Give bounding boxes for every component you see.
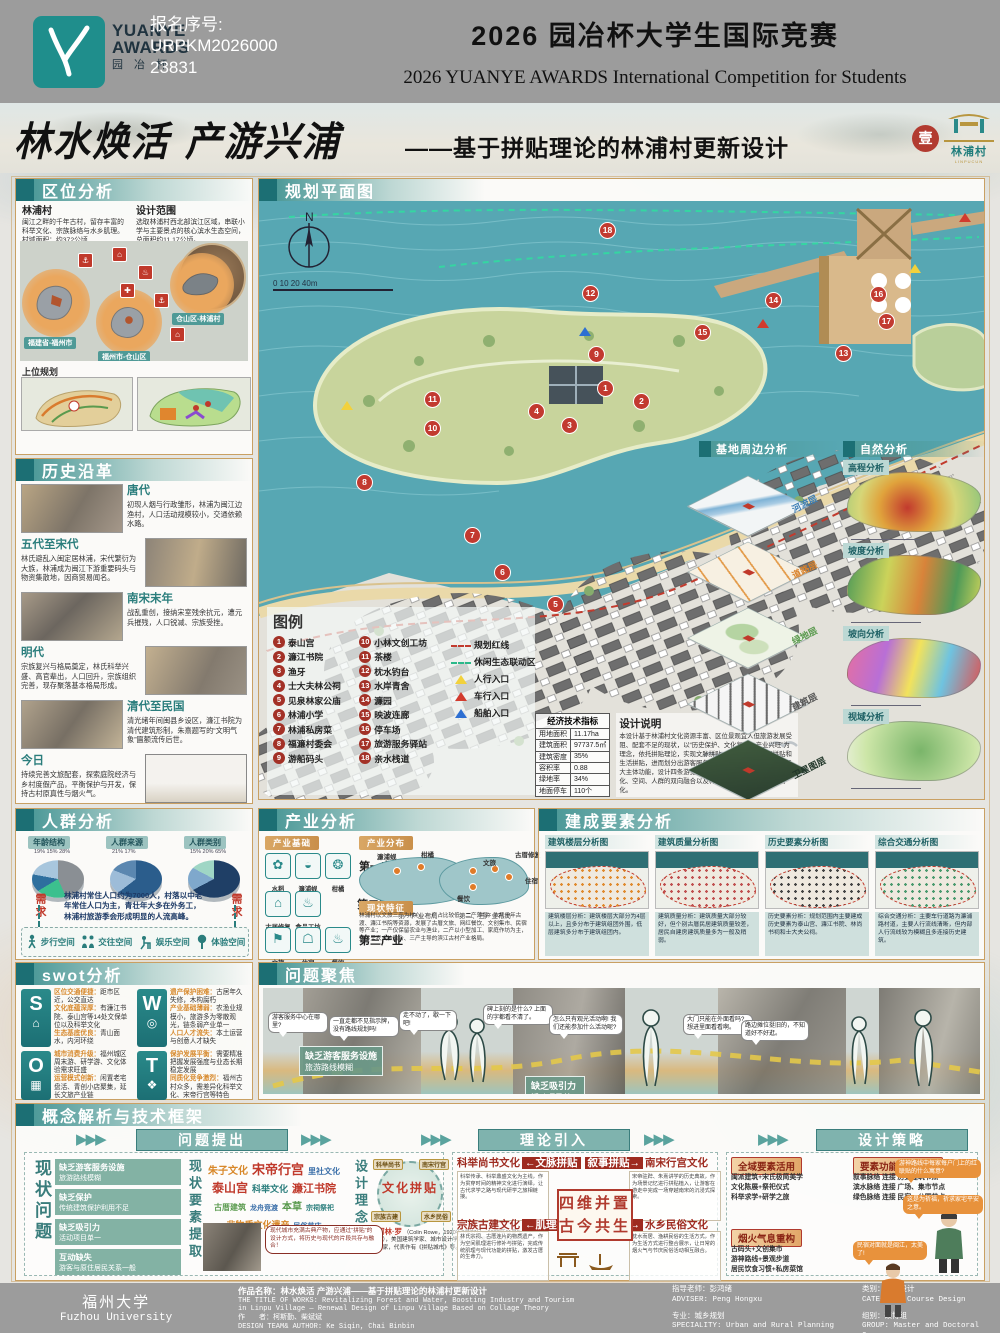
built-map-caption: 历史要素分析：规划范围内主要建成历史要素为泰山宫、濂江书院、林尚书祠和士大夫公祠… (765, 912, 869, 956)
industry-icon-tile: ♨食品工坊 (295, 891, 321, 917)
element-word: 科举文化 (252, 1185, 288, 1195)
pie-chart-label: 年龄结构 (28, 836, 70, 849)
nature-map: 高程分析 (843, 460, 985, 540)
section-people-analysis: 人群分析 年龄结构 19% 15% 28% 人群来源 21% 17% 人群类别 (15, 808, 253, 960)
poster-title-calligraphy: 林水焕活 产游兴浦 (14, 109, 341, 167)
subsection-title: 基地周边分析 (711, 441, 841, 457)
north-arrow: N (287, 209, 331, 273)
collage-circle: 文化拼贴 科举尚书南宋行宫宗族古建水乡民俗 (377, 1161, 443, 1227)
industry-icon: ✿ (273, 857, 284, 872)
history-text: 南宋末年 战乱重创，接纳宋室残余抗元，遭元兵摧残，人口锐减、宗族受挫。 (127, 592, 247, 641)
section-header: 概念解析与技术框架 (16, 1104, 984, 1126)
legend-line-item: 人行入口 (451, 672, 529, 685)
poi-badge: ⌂ (112, 247, 127, 262)
legend-item: 3渔牙 (273, 665, 353, 678)
history-text: 今日 持续完善文旅配套，探索庭院经济与乡村度假产品，平衡保护与开发，保持古村原真… (21, 754, 141, 803)
four-dimension-badge: 四维并置 古今共生 (557, 1189, 633, 1241)
registration-number: 报名序号: URPKM2026000 23831 (150, 14, 278, 78)
industry-icon-tile: ❂柑橘 (325, 853, 351, 879)
built-map-title: 历史要素分析图 (765, 835, 869, 849)
history-text: 唐代 初现人烟与行政雏形，林浦为闽江边渔村，人口活动规模较小，交通依赖水路。 (127, 484, 247, 533)
built-map-title: 建筑楼层分析图 (545, 835, 649, 849)
swot-card-w: W◎ 遗产保护困难：古居年久失修，木构腐朽产业基础薄弱：农渔业规模小，旅游多为零… (137, 989, 249, 1047)
section-history: 历史沿革 唐代 初现人烟与行政雏形，林浦为闽江边渔村，人口活动规模较小，交通依赖… (15, 458, 253, 804)
two-person-icon (80, 934, 96, 950)
section-title: 概念解析与技术框架 (34, 1104, 302, 1126)
history-photo (21, 484, 123, 533)
industry-icon: ⚑ (272, 931, 284, 946)
legend-item: 15映波连廊 (359, 708, 445, 721)
swot-letter-o: O▦ (21, 1051, 51, 1100)
mini-scale (851, 622, 921, 623)
problem-box: 缺乏游客服务设施 旅游路线模糊 (55, 1159, 181, 1185)
theory-para: 宋帝驻跸、朱熹讲学的历史典故，作为场景记忆进行拼贴植入，让游客在游走中完成一场穿… (629, 1171, 721, 1221)
section-title: swot分析 (34, 963, 252, 985)
history-photo (145, 538, 247, 587)
section-header: 产业分析 (259, 809, 534, 831)
analysis-layer: 绿地层 (699, 595, 841, 657)
city-icon: ▦ (21, 1079, 51, 1092)
page-number-seal: 壹 (912, 125, 939, 152)
legend-symbol (455, 675, 467, 684)
section-header: swot分析 (16, 963, 252, 985)
industry-icon-tile: ✿水稻 (265, 853, 291, 879)
map-marker[interactable]: 7 (464, 527, 481, 544)
industry-icon: ♨ (302, 895, 314, 910)
theory-line-1: 科举尚书文化←文脉拼贴叙事拼贴→南宋行宫文化 (457, 1155, 708, 1170)
swot-letter-w: W◎ (137, 989, 167, 1047)
legend-item: 9游船码头 (273, 752, 353, 765)
legend-item: 18亲水栈道 (359, 752, 445, 765)
problem-box: 缺乏保护 传统建筑保护利用不足 (55, 1189, 181, 1215)
legend-item: 2濂江书院 (273, 650, 353, 663)
industry-icon: ♨ (332, 931, 344, 946)
history-entry: 明代 宗族复兴与格局奠定，林氏科举兴盛、高官辈出，人口回升，宗族组织完善，现存聚… (16, 643, 252, 697)
element-word: 泰山宫 (212, 1182, 248, 1195)
city-circle (96, 289, 162, 355)
legend-item: 13水岸青舍 (359, 679, 445, 692)
legend-item: 6林浦小学 (273, 708, 353, 721)
section-title: 建成要素分析 (557, 809, 984, 831)
pie-chart-label: 人群来源 (106, 836, 148, 849)
analysis-layer: 河流层 (699, 463, 841, 525)
indicator-row: 用地面积11.17ha (536, 729, 610, 740)
legend-item: 1泰山宫 (273, 636, 353, 649)
section-nature-analysis: 自然分析 高程分析 坡度分析 坡 (843, 441, 985, 797)
map-marker[interactable]: 16 (870, 286, 887, 303)
legend-symbol (451, 645, 471, 647)
legend-line-item: 休闲生态联动区 (451, 655, 529, 668)
built-map (875, 851, 979, 909)
legend-title: 图例 (273, 611, 529, 632)
chevron-icon: ▶▶▶ (76, 1130, 105, 1148)
industry-icon-tile: ◒濂浦蚬 (295, 853, 321, 879)
industry-icon-tile: ♨餐饮 (325, 927, 351, 953)
tree-icon (195, 934, 209, 950)
map-marker[interactable]: 12 (582, 285, 599, 302)
chevron-icon: ▶▶▶ (758, 1130, 787, 1148)
swot-card-t: T❖ 保护发展平衡：需要精准把握发展强度与业态长期稳定发展同质化竞争激烈：福州古… (137, 1051, 249, 1100)
blocks-icon: ❖ (137, 1079, 167, 1092)
nature-map-label: 坡度分析 (843, 543, 889, 558)
location-map: ⚓ ⌂ ♨ ✚ ⚓ ⌂ 福建省-福州市 福州市-仓山区 仓山区-林浦村 (20, 241, 248, 361)
upper-plan-map-2 (137, 377, 251, 431)
section-location-analysis: 区位分析 林浦村 闽江之畔的千年古村，留存丰富的科举文化、宗族脉络与水乡肌理。村… (15, 178, 253, 455)
collage-satellite: 宗族古建 (371, 1211, 401, 1222)
history-entry: 清代至民国 清光绪年间闽县乡设区，濂江书院为清代建筑形制，朱熹题写的“文明气象”… (16, 697, 252, 751)
village-badge-en: LINPUCUN (944, 159, 994, 164)
legend-line-item: 规划红线 (451, 638, 529, 651)
strategy-speech-bubble: 游神路线中每家每户门上的红联贴的什么寓意? (895, 1159, 981, 1178)
village-badge-name: 林浦村 (944, 140, 994, 159)
strategy-item: 闽派建筑+宋氏极简美学 (731, 1173, 847, 1183)
theory-para: 枕水而居、渔耕民俗的生活方式，作为生活方式进行整合展示，让日常的烟火气与节庆民俗… (629, 1231, 721, 1281)
mini-scale (851, 788, 921, 789)
built-analysis-column: 建筑质量分析图 建筑质量分析：建筑质量大部分较好，但个别古厝民居建筑质量较差，居… (655, 835, 759, 956)
speech-bubble: 游客服务中心在哪里? (268, 1012, 328, 1033)
built-analysis-column: 历史要素分析图 历史要素分析：规划范围内主要建成历史要素为泰山宫、濂江书院、林尚… (765, 835, 869, 956)
poster: YUANYE AWARDS 园 冶 杯 报名序号: URPKM2026000 2… (0, 0, 1000, 1333)
collage-satellite: 科举尚书 (373, 1159, 403, 1170)
competition-title-en: 2026 YUANYE AWARDS International Competi… (330, 67, 980, 89)
section-header: 规划平面图 (259, 179, 984, 201)
entrance-triangle (341, 401, 353, 410)
speech-bubble: 碑上刻的是什么? 上面的字都看不清了。 (483, 1004, 553, 1025)
design-scope: 设计范围 选取林浦村西北部滨江区域，串联小学与主要景点的核心滨水生态空间，总面积… (136, 205, 248, 245)
history-photo (145, 754, 247, 803)
speech-bubble: 一直走都不见指示牌，没有路线规划吗! (329, 1016, 399, 1037)
map-marker[interactable]: 8 (356, 474, 373, 491)
poi-badge: ⚓ (78, 253, 93, 268)
industry-icon: ☖ (302, 931, 314, 946)
swot-item: 产业基础薄弱：农渔业规模小，旅游多为零散观光，链条弱产业单一 (170, 1005, 249, 1030)
gate-icon (946, 109, 992, 135)
demand-label-left: 需求 (32, 893, 48, 919)
map-marker[interactable]: 2 (633, 393, 650, 410)
built-map-caption: 建筑楼层分析：建筑楼层大部分为4层以上，且多分布于建筑组团外围，低层建筑多分布于… (545, 912, 649, 956)
section-built-elements: 建成要素分析 建筑楼层分析图 建筑楼层分析：建筑楼层大部分为4层以上，且多分布于… (538, 808, 985, 960)
design-notes-title: 设计说明 (619, 718, 661, 730)
map-marker[interactable]: 15 (694, 324, 711, 341)
indicator-row: 容积率0.88 (536, 762, 610, 773)
history-text: 清代至民国 清光绪年间闽县乡设区，濂江书院为清代建筑形制，朱熹题写的“文明气象”… (127, 700, 247, 749)
swot-card-o: O▦ 城市消费升级：福州城区周末游、研学游、文化体验需求旺盛运营模式创新：闲置老… (21, 1051, 133, 1100)
tertiary-industry-map: 古厝修复文旅住宿餐饮 第二、三产业布局 (439, 849, 531, 911)
element-word: 宗祠祭祀 (306, 1205, 334, 1213)
subsection-header: 自然分析 (843, 441, 985, 457)
nature-map-label: 高程分析 (843, 460, 889, 475)
chevron-icon: ▶▶▶ (301, 1130, 330, 1148)
history-era: 清代至民国 (127, 700, 247, 715)
pie-percentages: 15% 20% 65% (190, 849, 226, 855)
poi-badge: ♨ (138, 265, 153, 280)
section-concept-framework: 概念解析与技术框架 ▶▶▶ 问题提出 ▶▶▶ ▶▶▶ 理论引入 ▶▶▶ ▶▶▶ … (15, 1103, 985, 1281)
section-problem-focus: 问题聚焦 缺乏游客服务设施 (258, 962, 985, 1100)
map-marker[interactable]: 9 (588, 346, 605, 363)
history-era: 唐代 (127, 484, 247, 499)
history-photo (145, 646, 247, 695)
problem-comic-strip: 缺乏游客服务设施 旅游路线模糊 缺乏保护 传统建筑保护利用不足 缺乏吸引力 活动… (263, 988, 980, 1094)
industry-icon-tile: ☖住宿 (295, 927, 321, 953)
history-photo (21, 700, 123, 749)
title-band: 林水焕活 产游兴浦 ——基于拼贴理论的林浦村更新设计 壹 林浦村 LINPUCU… (0, 103, 1000, 173)
element-word: 宋帝行宫 (252, 1163, 304, 1177)
entrance-triangle (579, 327, 591, 336)
problem-box: 缺乏吸引力 活动项目单一 (55, 1219, 181, 1245)
element-word: 古厝建筑 (214, 1204, 246, 1213)
space-social: 交往空间 (80, 934, 132, 950)
map-marker[interactable]: 6 (494, 564, 511, 581)
university-block: 福州大学 Fuzhou University (60, 1291, 172, 1324)
legend-item: 16停车场 (359, 723, 445, 736)
section-header: 区位分析 (16, 179, 252, 201)
colin-rowe-portrait (203, 1223, 261, 1271)
section-title: 产业分析 (277, 809, 534, 831)
indicator-row: 建筑密度35% (536, 751, 610, 762)
built-map (655, 851, 759, 909)
strategy-item: 科举求学+研学之旅 (731, 1193, 847, 1203)
svg-text:N: N (305, 210, 314, 224)
history-text: 明代 宗族复兴与格局奠定，林氏科举兴盛、高官辈出，人口回升，宗族组织完善，现存聚… (21, 646, 141, 695)
legend-item: 11茶楼 (359, 650, 445, 663)
region-label: 仓山区-林浦村 (172, 313, 224, 325)
person-table-icon (138, 934, 154, 950)
built-map (545, 851, 649, 909)
map-marker[interactable]: 18 (599, 222, 616, 239)
section-surrounding-analysis: 基地周边分析 河流层 道路层 绿地层 (699, 441, 841, 797)
industry-icon: ❂ (333, 857, 344, 872)
chevron-icon: ▶▶▶ (644, 1130, 673, 1148)
problem-box: 互动缺失 游客与原住居民关系一般 (55, 1249, 181, 1275)
pie-chart-label: 人群类别 (184, 836, 226, 849)
industry-icon-tile: ⌂古居修复 (265, 891, 291, 917)
strategy-speech-bubble: 这是为祈福，祈求家宅平安之意。 (903, 1195, 983, 1214)
nature-map-label: 坡向分析 (843, 626, 889, 641)
framework-theory-block: 科举尚书文化←文脉拼贴叙事拼贴→南宋行宫文化 科举传承、科举鼎盛文化为主线，作为… (452, 1152, 718, 1276)
strategy-item: 文化陈展+祭祀仪式 (731, 1183, 847, 1193)
legend-item: 7林浦私房菜 (273, 723, 353, 736)
competition-title-cn: 2026 园冶杯大学生国际竞赛 (330, 14, 980, 53)
speech-bubble: 路边摊位挺旧的，不知道好不好逛。 (741, 1020, 809, 1041)
element-word: 里社文化 (308, 1168, 340, 1177)
section-header: 人群分析 (16, 809, 252, 831)
legend-item: 8福濂村委会 (273, 737, 353, 750)
history-era: 今日 (21, 754, 141, 769)
indicator-row: 地面停车110个 (536, 785, 610, 796)
framework-strategy-block: 全域要素活用 闽派建筑+宋氏极简美学文化陈展+祭祀仪式科举求学+研学之旅 要素功… (726, 1152, 978, 1276)
element-word: 本草 (282, 1202, 302, 1213)
history-entry: 南宋末年 战乱重创，接纳宋室残余抗元，遭元兵摧残，人口锐减、宗族受挫。 (16, 589, 252, 643)
village-intro: 林浦村 闽江之畔的千年古村，留存丰富的科举文化、宗族脉络与水乡肌理。村域面积：约… (22, 205, 128, 245)
poi-badge: ⚓ (154, 293, 169, 308)
strategy-item: 古码头+文创集市 (731, 1245, 847, 1255)
swot-letter-t: T❖ (137, 1051, 167, 1100)
problem-label: 缺乏游客服务设施 旅游路线模糊 (299, 1046, 383, 1076)
built-analysis-column: 建筑楼层分析图 建筑楼层分析：建筑楼层大部分为4层以上，且多分布于建筑组团外围，… (545, 835, 649, 956)
framework-problem-block: 现状问题 缺乏游客服务设施 旅游路线模糊 缺乏保护 传统建筑保护利用不足 缺乏吸… (24, 1152, 444, 1276)
swot-item: 文化底蕴深厚：有濂江书院、泰山宫等14处文保单位以及科举文化 (54, 1005, 133, 1030)
section-header: 建成要素分析 (539, 809, 984, 831)
yuanye-logo-icon (33, 16, 105, 88)
strategy-item: 居民饮食习惯+私房菜馆 (731, 1265, 847, 1275)
map-marker[interactable]: 13 (835, 345, 852, 362)
vertical-title-problems: 现状问题 (29, 1159, 54, 1243)
swot-item: 城市消费升级：福州城区周末游、研学游、文化体验需求旺盛 (54, 1051, 133, 1076)
table-boat-icons (555, 1249, 615, 1271)
industry-icon: ⌂ (274, 895, 282, 910)
tourist-figure (873, 1263, 913, 1319)
swot-card-s: S⌂ 区位交通便捷：距市区近，公交直达文化底蕴深厚：有濂江书院、泰山宫等14处文… (21, 989, 133, 1047)
demand-arrow (38, 905, 40, 927)
legend-item: 14濂园 (359, 694, 445, 707)
legend-symbol (455, 692, 467, 701)
swot-item: 人口人才流失：本土运营与创意人才缺失 (170, 1030, 249, 1046)
village-badge: 林浦村 LINPUCUN (944, 109, 994, 169)
poi-badge: ⌂ (170, 327, 185, 342)
map-marker[interactable]: 3 (561, 417, 578, 434)
route-dashes (263, 988, 980, 1094)
demand-label-right: 需求 (228, 893, 244, 919)
speech-bubble: 怎么只有观光活动啊! 我们还能参加什么活动呢? (549, 1014, 623, 1035)
swot-item: 保护发展平衡：需要精准把握发展强度与业态长期稳定发展 (170, 1051, 249, 1076)
section-master-plan: 规划平面图 (258, 178, 985, 800)
vertical-title-concept: 设计理念 (351, 1159, 370, 1227)
history-era: 五代至宋代 (21, 538, 141, 553)
poster-title-subtitle: ——基于拼贴理论的林浦村更新设计 (405, 129, 789, 163)
element-word: 濂江书院 (292, 1183, 336, 1195)
legend-item: 10小林文创工坊 (359, 636, 445, 649)
history-era: 明代 (21, 646, 141, 661)
nature-map: 坡向分析 (843, 626, 985, 706)
legend-item: 17旅游服务驿站 (359, 737, 445, 750)
history-era: 南宋末年 (127, 592, 247, 607)
map-marker[interactable]: 5 (547, 596, 564, 613)
entrance-triangle (959, 213, 971, 222)
history-entry: 今日 持续完善文旅配套，探索庭院经济与乡村度假产品，平衡保护与开发，保持古村原真… (16, 751, 252, 805)
map-marker[interactable]: 11 (424, 391, 441, 408)
history-entry: 五代至宋代 林氏避乱入闽定居林浦，宋代繁衍为大族，林浦成为闽江下游重要码头与物资… (16, 535, 252, 589)
swot-item: 生态基底优良：青山面水，内河环绕 (54, 1030, 133, 1046)
subsection-header: 基地周边分析 (699, 441, 841, 457)
strategy-item: 游神路线+景观步道 (731, 1255, 847, 1265)
map-marker[interactable]: 10 (424, 420, 441, 437)
walking-person-icon (25, 934, 39, 950)
space-walk: 步行空间 (25, 934, 75, 950)
industry-status-text: 林浦村以文旅三产为核心，一产占比较低、二产薄弱。依托千年古渡、濂江书院等资源，发… (359, 913, 529, 943)
pie-percentages: 21% 17% (112, 849, 136, 855)
section-title: 问题聚焦 (277, 963, 465, 985)
section-title: 历史沿革 (34, 459, 252, 481)
built-analysis-column: 综合交通分析图 综合交通分析：主要车行道路为濂浦路村道，主要人行流线清晰，但内部… (875, 835, 979, 956)
step-theory: 理论引入 (478, 1129, 630, 1151)
section-swot: swot分析 S⌂ 区位交通便捷：距市区近，公交直达文化底蕴深厚：有濂江书院、泰… (15, 962, 253, 1100)
industry-icon: ◒ (304, 857, 312, 872)
legend-line-item: 车行入口 (451, 689, 529, 702)
history-text: 五代至宋代 林氏避乱入闽定居林浦，宋代繁衍为大族，林浦成为闽江下游重要码头与物资… (21, 538, 141, 587)
pie-percentages: 19% 15% 28% (34, 849, 70, 855)
indicator-row: 建筑面积97737.5㎡ (536, 740, 610, 751)
space-needs-strip: 步行空间 交往空间 娱乐空间 体验空间 (21, 927, 249, 957)
mini-scale (851, 539, 921, 540)
theory-para: 科举传承、科举鼎盛文化为主线，作为贯穿时间的精神文化进行演绎，让古代求学之路与现… (457, 1171, 549, 1221)
map-marker[interactable]: 1 (597, 380, 614, 397)
region-label: 福州市-仓山区 (98, 351, 150, 361)
indicator-row: 绿地率34% (536, 774, 610, 785)
section-header: 问题聚焦 (259, 963, 984, 985)
nature-map: 视域分析 (843, 709, 985, 789)
entrance-triangle (757, 319, 769, 328)
swot-item: 运营模式创新：闲置老宅盘活、青创小店聚集，延长文旅产业链 (54, 1075, 133, 1100)
indicators-title: 经济技术指标 (536, 714, 610, 729)
map-legend: 图例 1泰山宫2濂江书院3渔牙4士大夫林公祠5见泉林家公庙6林浦小学7林浦私房菜… (267, 607, 535, 795)
section-header: 历史沿革 (16, 459, 252, 481)
space-leisure: 娱乐空间 (138, 934, 190, 950)
built-map (765, 851, 869, 909)
mini-scale (851, 705, 921, 706)
element-word: 朱子文化 (208, 1166, 248, 1177)
section-industry-analysis: 产业分析 产业基础 产业分布 ✿水稻◒濂浦蚬❂柑橘 第一产业 ⌂古居修复♨食品工… (258, 808, 535, 960)
legend-item: 12枕水钓台 (359, 665, 445, 678)
colin-rowe-quote: 现代城市充满古典产物，应通过“拼贴”的设计方式，将历史与现代的片段共存与融合！ (265, 1225, 383, 1254)
industry-base-label: 产业基础 (265, 836, 319, 850)
province-circle (22, 269, 90, 337)
villager-figure (927, 1209, 971, 1275)
industry-dist-label: 产业分布 (359, 836, 413, 850)
region-label: 福建省-福州市 (24, 337, 76, 349)
nature-map: 坡度分析 (843, 543, 985, 623)
theory-para: 林氏宗祠、古厝连片的物质遗产，作为空间肌理进行修补与拼贴，完成传统肌理与现代功能… (457, 1231, 549, 1281)
chevron-icon: ▶▶▶ (421, 1130, 450, 1148)
work-title-block: 作品名称：林水焕活 产游兴浦——基于拼贴理论的林浦村更新设计 THE TITLE… (238, 1286, 658, 1332)
map-marker[interactable]: 4 (528, 403, 545, 420)
legend-line-item: 船舶入口 (451, 706, 529, 719)
district-circle (170, 253, 234, 317)
swot-letter-s: S⌂ (21, 989, 51, 1047)
element-word: 龙舟竞渡 (250, 1205, 278, 1213)
legend-item: 4士大夫林公祠 (273, 679, 353, 692)
step-strategy: 设计策略 (816, 1129, 968, 1151)
competition-title: 2026 园冶杯大学生国际竞赛 2026 YUANYE AWARDS Inter… (330, 14, 980, 89)
swot-item: 区位交通便捷：距市区近，公交直达 (54, 989, 133, 1005)
legend-symbol (451, 662, 471, 664)
section-title: 人群分析 (34, 809, 252, 831)
upper-plan-map-1 (21, 377, 133, 431)
built-map-title: 综合交通分析图 (875, 835, 979, 849)
header-bar: YUANYE AWARDS 园 冶 杯 报名序号: URPKM2026000 2… (0, 0, 1000, 103)
speech-bubble: 走不动了，歇一下吧! (399, 1010, 457, 1031)
subsection-title: 自然分析 (855, 441, 985, 457)
history-entry: 唐代 初现人烟与行政雏形，林浦为闽江边渔村，人口活动规模较小，交通依赖水路。 (16, 481, 252, 535)
population-description: 林浦村常住人口约为7000人，村落以中老年常住人口为主，青壮年大多在外务工，林浦… (64, 891, 206, 922)
strategy-speech-bubble: 民宿对面就是闽江，太美了! (853, 1241, 927, 1260)
scale-bar: 0 10 20 40m (273, 279, 393, 291)
map-marker[interactable]: 17 (878, 313, 895, 330)
space-experience: 体验空间 (195, 934, 245, 950)
section-title: 区位分析 (34, 179, 252, 201)
history-photo (21, 592, 123, 641)
legend-symbol (455, 709, 467, 718)
problem-label: 缺乏吸引力 活动项目单一 (525, 1076, 585, 1094)
swot-item: 同质化竞争激烈：福州古村众多，需差异化科举文化、宋帝行宫等特色 (170, 1075, 249, 1100)
collage-satellite: 水乡民俗 (421, 1211, 451, 1222)
analysis-layer: 建筑层 (699, 661, 841, 723)
built-map-title: 建筑质量分析图 (655, 835, 759, 849)
target-icon: ◎ (137, 1017, 167, 1030)
nature-map-label: 视域分析 (843, 709, 889, 724)
building-icon: ⌂ (21, 1017, 51, 1030)
map-marker[interactable]: 14 (765, 292, 782, 309)
footer-bar: 福州大学 Fuzhou University 作品名称：林水焕活 产游兴浦——基… (0, 1283, 1000, 1333)
